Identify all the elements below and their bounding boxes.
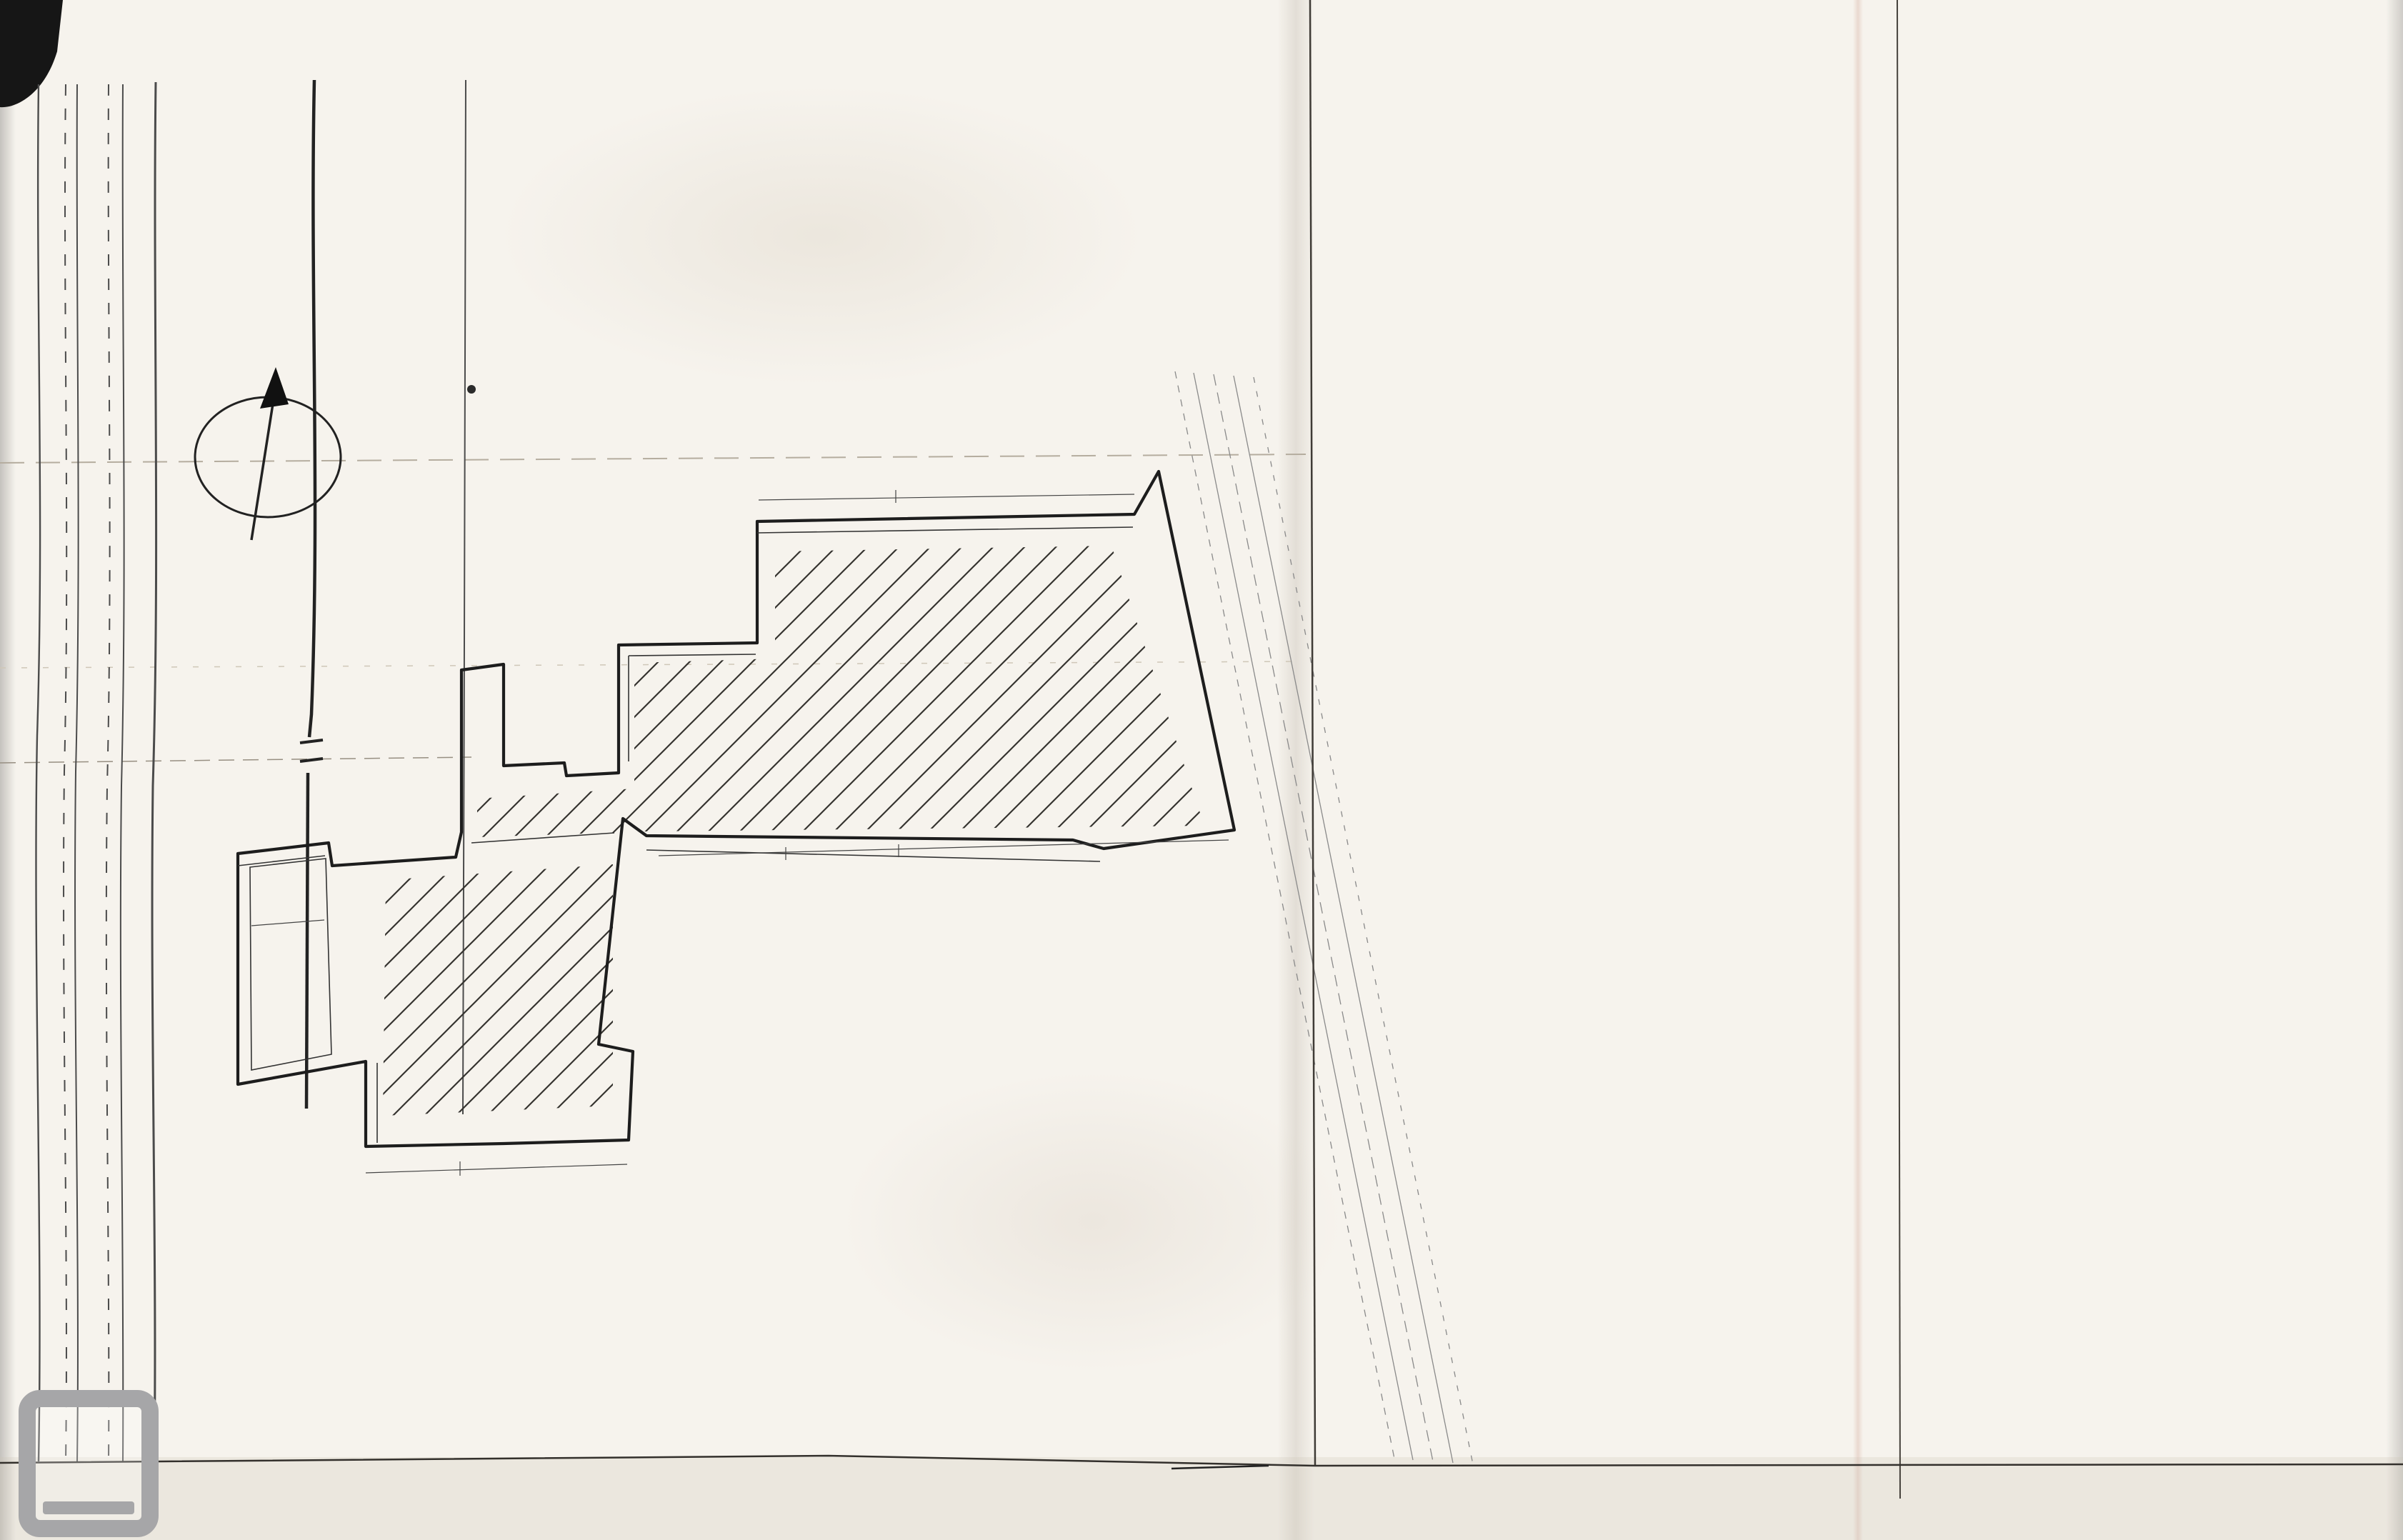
camscanner-logo-icon xyxy=(19,1390,159,1537)
camscanner-watermark xyxy=(19,1390,204,1537)
north-compass xyxy=(195,367,341,540)
scan-dot xyxy=(467,385,476,394)
map-column-divider xyxy=(1310,0,1315,1466)
scan-corner-mark xyxy=(0,0,63,107)
sector-road-lines xyxy=(1175,371,1473,1464)
site-plan-drawing xyxy=(0,0,2403,1540)
building-zone-hatch-lower xyxy=(383,864,613,1116)
sheet-bottom-edge xyxy=(0,1456,2403,1466)
highway-lines xyxy=(36,80,466,1461)
culvert-symbol xyxy=(300,740,323,761)
building-zone-hatch-upper xyxy=(477,546,1204,837)
scanned-zoning-plan-page xyxy=(0,0,2403,1540)
column-divider xyxy=(1897,0,1900,1499)
